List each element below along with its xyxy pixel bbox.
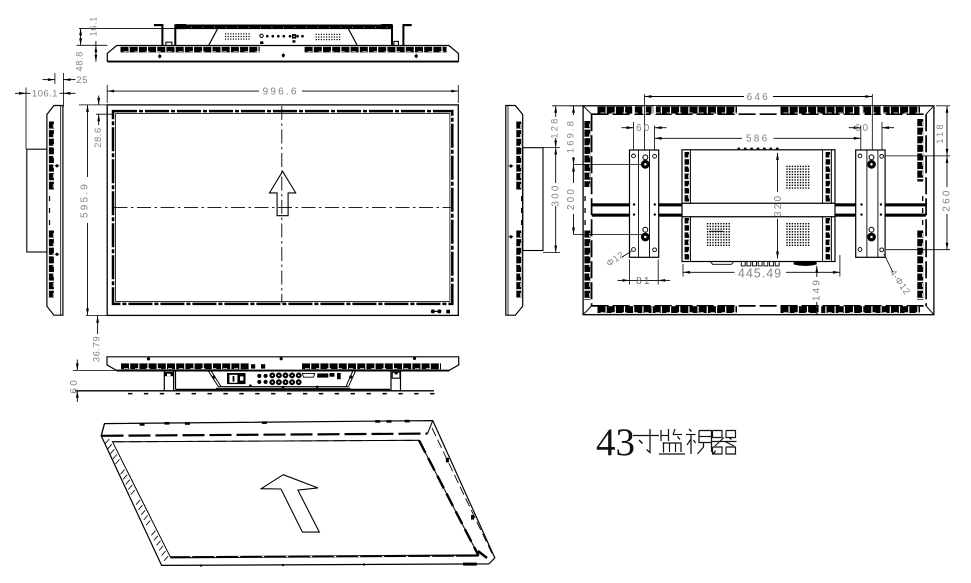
svg-text:646: 646 bbox=[747, 92, 770, 103]
svg-text:586: 586 bbox=[746, 134, 769, 145]
svg-text:60: 60 bbox=[855, 123, 871, 134]
svg-text:149: 149 bbox=[811, 278, 822, 301]
svg-text:48.8: 48.8 bbox=[74, 51, 84, 72]
svg-text:81: 81 bbox=[636, 276, 652, 287]
svg-text:106.1: 106.1 bbox=[32, 88, 58, 99]
svg-text:28.6: 28.6 bbox=[93, 127, 103, 148]
svg-text:60: 60 bbox=[69, 378, 80, 394]
svg-text:169.8: 169.8 bbox=[565, 119, 575, 153]
svg-text:300: 300 bbox=[550, 183, 561, 206]
svg-text:36.79: 36.79 bbox=[92, 336, 102, 362]
svg-text:320: 320 bbox=[773, 194, 784, 217]
svg-text:43: 43 bbox=[596, 421, 635, 464]
svg-text:118: 118 bbox=[935, 122, 945, 143]
svg-text:60: 60 bbox=[636, 123, 652, 134]
svg-text:996.6: 996.6 bbox=[263, 87, 299, 98]
svg-text:445.49: 445.49 bbox=[738, 266, 782, 280]
svg-text:595.9: 595.9 bbox=[79, 182, 90, 218]
svg-text:260: 260 bbox=[942, 188, 953, 211]
svg-text:25: 25 bbox=[76, 75, 88, 86]
svg-text:128: 128 bbox=[549, 116, 559, 138]
svg-text:200: 200 bbox=[566, 187, 577, 210]
svg-text:16.1: 16.1 bbox=[89, 16, 99, 37]
